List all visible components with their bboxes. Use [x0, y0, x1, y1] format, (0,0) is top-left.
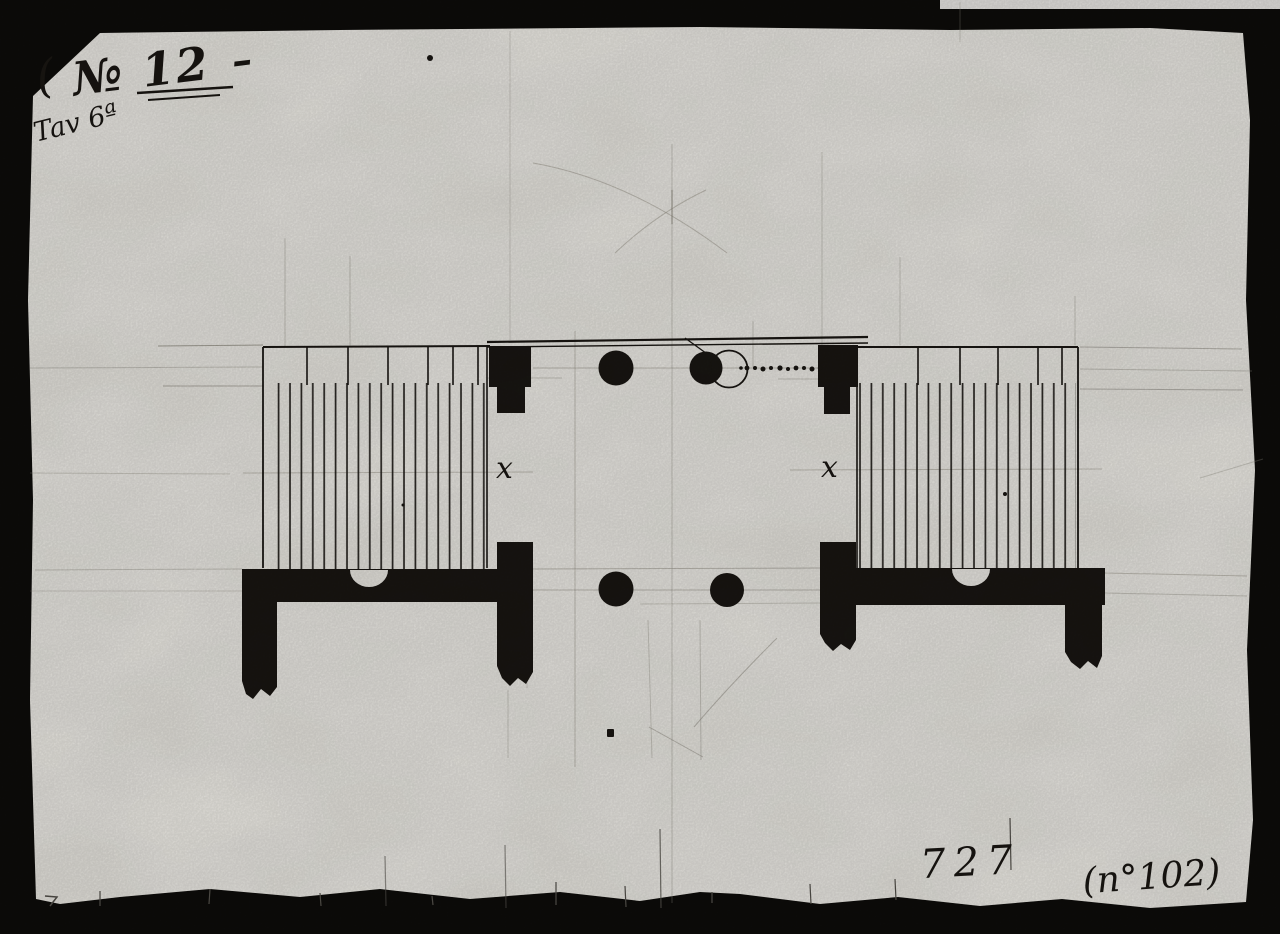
scan-grain-texture [0, 0, 1280, 934]
scanned-plan-page: ( № 12 – Tav 6ª x x 727 (n°102) [0, 0, 1280, 934]
plan-drawing: ( № 12 – Tav 6ª x x 727 (n°102) [0, 0, 1280, 934]
